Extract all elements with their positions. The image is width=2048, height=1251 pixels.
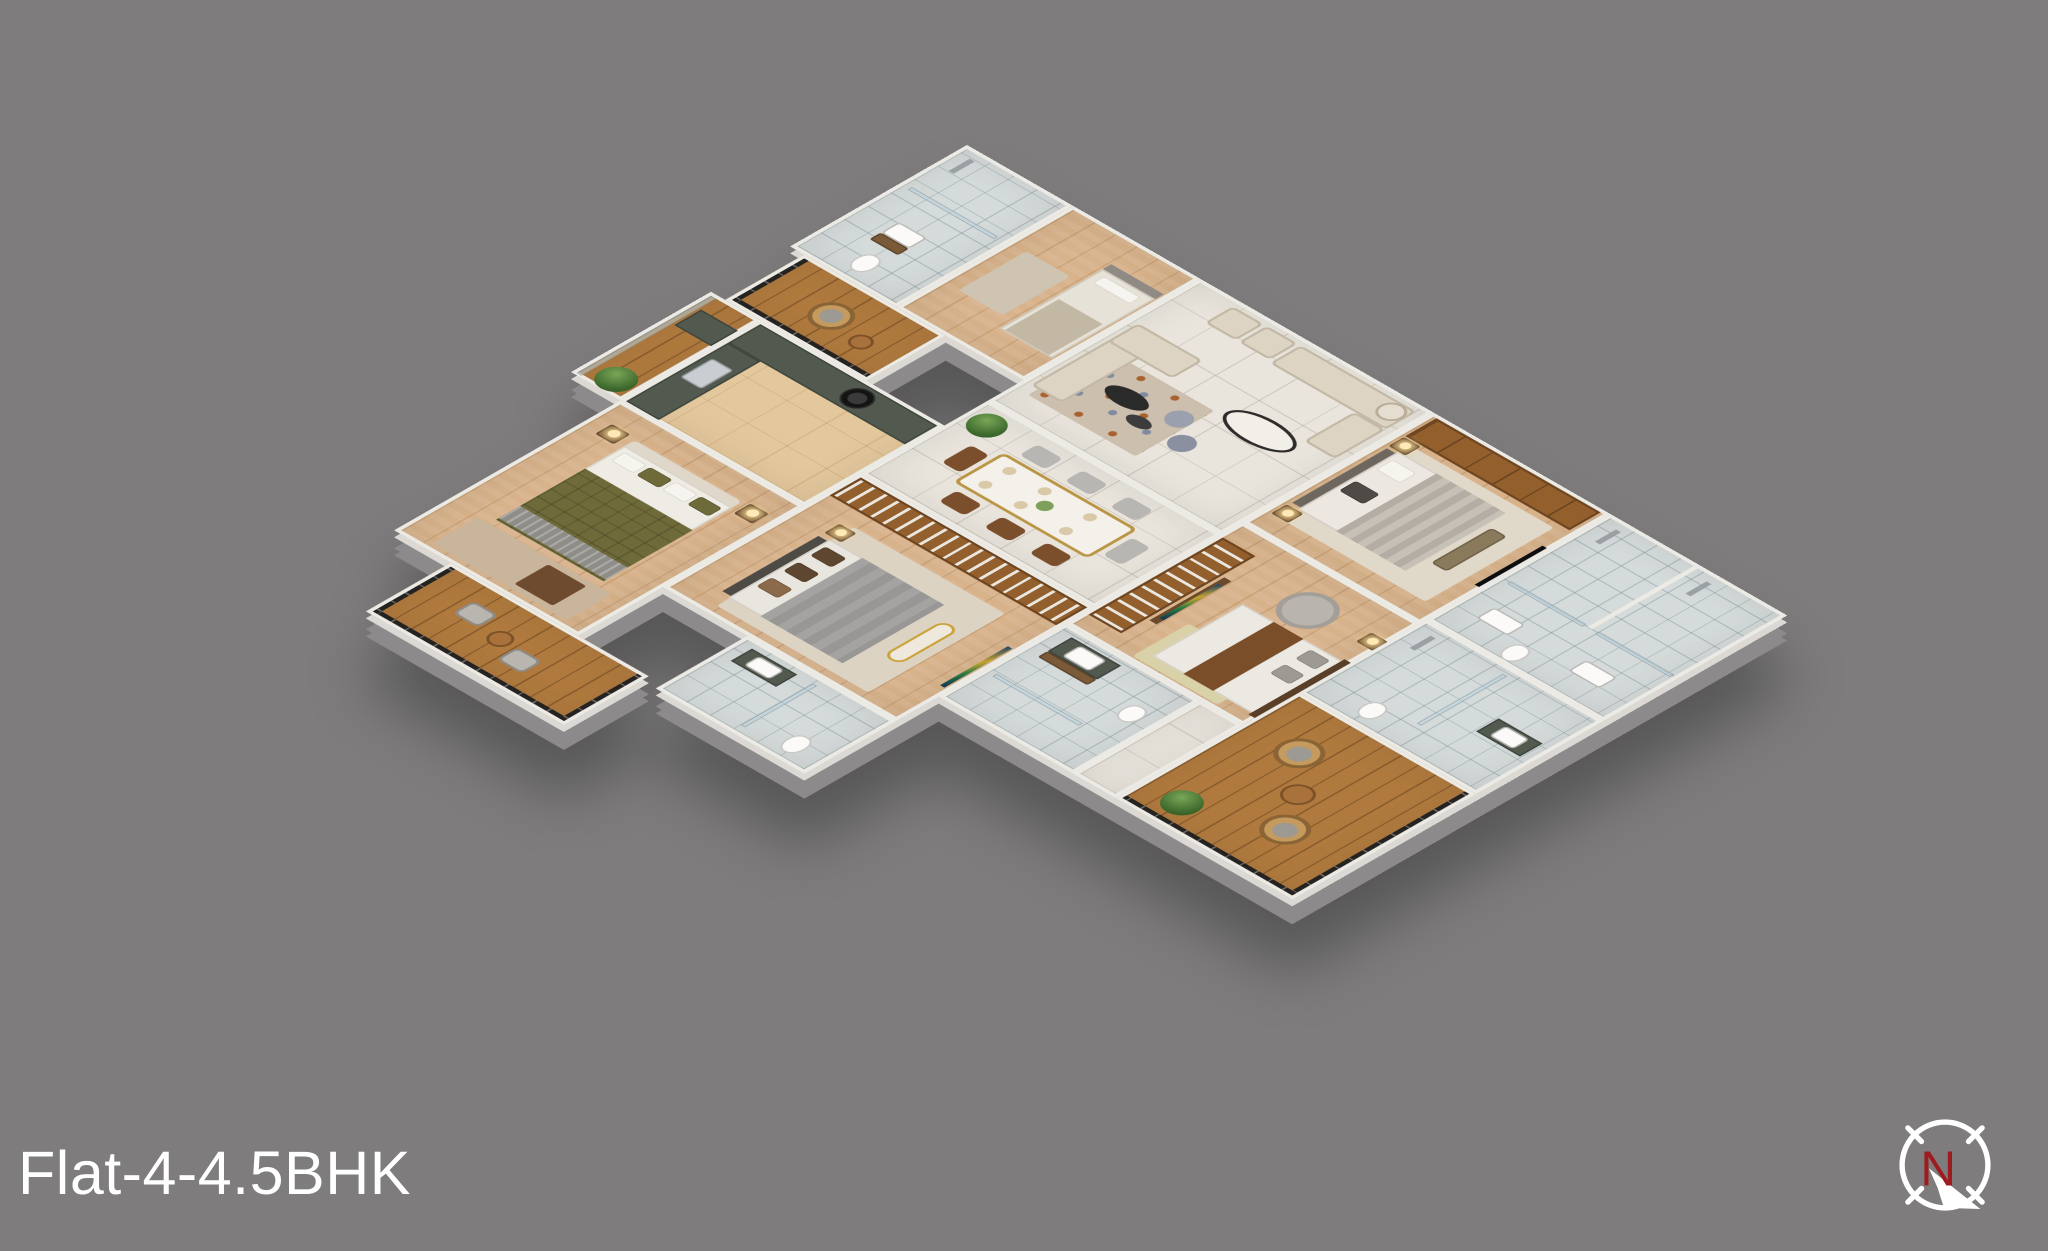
shower-glass <box>908 187 999 239</box>
place-setting <box>999 465 1019 476</box>
shower-head <box>1595 529 1621 544</box>
chair-cushion <box>1281 744 1318 765</box>
rattan-chair <box>1263 732 1337 774</box>
washbasin <box>1476 607 1525 635</box>
balcony-chair <box>452 601 499 628</box>
floor-plan <box>253 145 1787 1025</box>
shower-glass <box>1507 581 1586 626</box>
balcony-chair <box>496 647 543 674</box>
shower-glass <box>1595 632 1674 677</box>
rug-pattern <box>514 564 586 605</box>
rattan-chair <box>797 297 865 336</box>
place-setting <box>1080 512 1100 523</box>
centerpiece <box>1032 499 1057 514</box>
railing <box>560 674 642 721</box>
shower-head <box>1410 636 1436 651</box>
building-slab <box>440 80 1600 1090</box>
railing <box>373 609 568 721</box>
place-setting <box>975 479 995 490</box>
shower-glass <box>1417 674 1508 726</box>
railing <box>732 259 808 303</box>
oval-coffee-table <box>1210 403 1309 460</box>
round-table <box>1272 780 1323 809</box>
floor-plan-render: Flat-4-4.5BHK N <box>0 0 2048 1251</box>
railing <box>373 567 455 614</box>
toilet <box>1111 702 1152 726</box>
chair-cushion <box>814 306 848 325</box>
plan-title: Flat-4-4.5BHK <box>18 1138 411 1208</box>
toilet <box>775 732 817 756</box>
chair-cushion <box>1267 820 1304 841</box>
round-table <box>480 628 520 651</box>
toilet <box>844 251 886 275</box>
place-setting <box>1035 486 1055 497</box>
shower-glass <box>992 674 1083 726</box>
place-setting <box>1056 525 1076 536</box>
washbasin <box>1568 660 1617 688</box>
rattan-chair <box>1248 808 1322 850</box>
shower-glass <box>741 684 817 728</box>
plant <box>957 409 1016 443</box>
railing <box>1123 795 1297 895</box>
compass-north-label: N <box>1920 1141 1956 1196</box>
partition-wall <box>1588 566 1698 629</box>
shower-head <box>949 159 975 174</box>
shower-head <box>1685 581 1711 596</box>
compass-icon: N <box>1886 1106 2004 1224</box>
railing <box>1288 791 1469 895</box>
side-table <box>843 332 880 353</box>
place-setting <box>1011 499 1031 510</box>
toilet <box>1352 699 1393 723</box>
